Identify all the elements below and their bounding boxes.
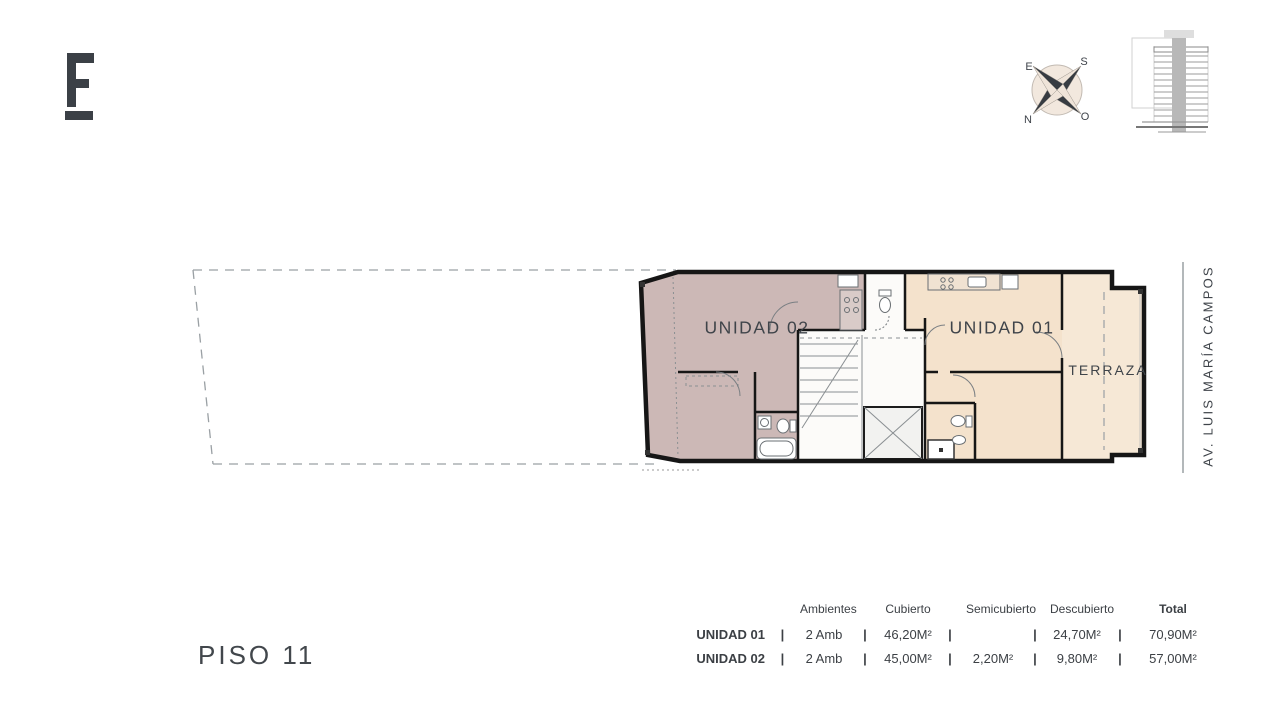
cell-separator: | (848, 627, 882, 642)
column-header-ambientes: Ambientes (800, 602, 848, 616)
lot-boundary-dashed (193, 270, 676, 464)
cell-separator: | (765, 651, 800, 666)
cell-unidad01-total: 70,90M² (1136, 627, 1210, 642)
cell-separator: | (1020, 627, 1050, 642)
column-header-cubierto: Cubierto (882, 602, 934, 616)
cell-separator: | (1104, 627, 1136, 642)
unit-02-label: UNIDAD 02 (705, 318, 810, 339)
cell-separator: | (765, 627, 800, 642)
column-header-semicubierto: Semicubierto (966, 602, 1020, 616)
row-label-unidad-02: UNIDAD 02 (690, 651, 765, 666)
elevator (864, 407, 922, 459)
column-header-descubierto: Descubierto (1050, 602, 1104, 616)
column-header-total: Total (1136, 602, 1210, 616)
cell-unidad02-descubierto: 9,80M² (1050, 651, 1104, 666)
cell-unidad02-cubierto: 45,00M² (882, 651, 934, 666)
cell-separator: | (934, 651, 966, 666)
cell-unidad01-ambientes: 2 Amb (800, 627, 848, 642)
floor-plan-page: E S N O (0, 0, 1280, 720)
cell-unidad01-descubierto: 24,70M² (1050, 627, 1104, 642)
cell-unidad02-ambientes: 2 Amb (800, 651, 848, 666)
unit-01-region (905, 274, 1062, 461)
unit-01-label: UNIDAD 01 (950, 318, 1055, 339)
cell-unidad02-semicubierto: 2,20M² (966, 651, 1020, 666)
areas-table: Ambientes Cubierto Semicubierto Descubie… (690, 596, 1210, 670)
floor-title: PISO 11 (198, 640, 315, 671)
terrace-label: TERRAZA (1068, 362, 1147, 378)
cell-unidad02-total: 57,00M² (1136, 651, 1210, 666)
row-label-unidad-01: UNIDAD 01 (690, 627, 765, 642)
cell-separator: | (1020, 651, 1050, 666)
cell-unidad01-cubierto: 46,20M² (882, 627, 934, 642)
street-name-label: AV. LUIS MARÍA CAMPOS (1201, 265, 1216, 467)
cell-separator: | (1104, 651, 1136, 666)
cell-separator: | (934, 627, 966, 642)
cell-separator: | (848, 651, 882, 666)
